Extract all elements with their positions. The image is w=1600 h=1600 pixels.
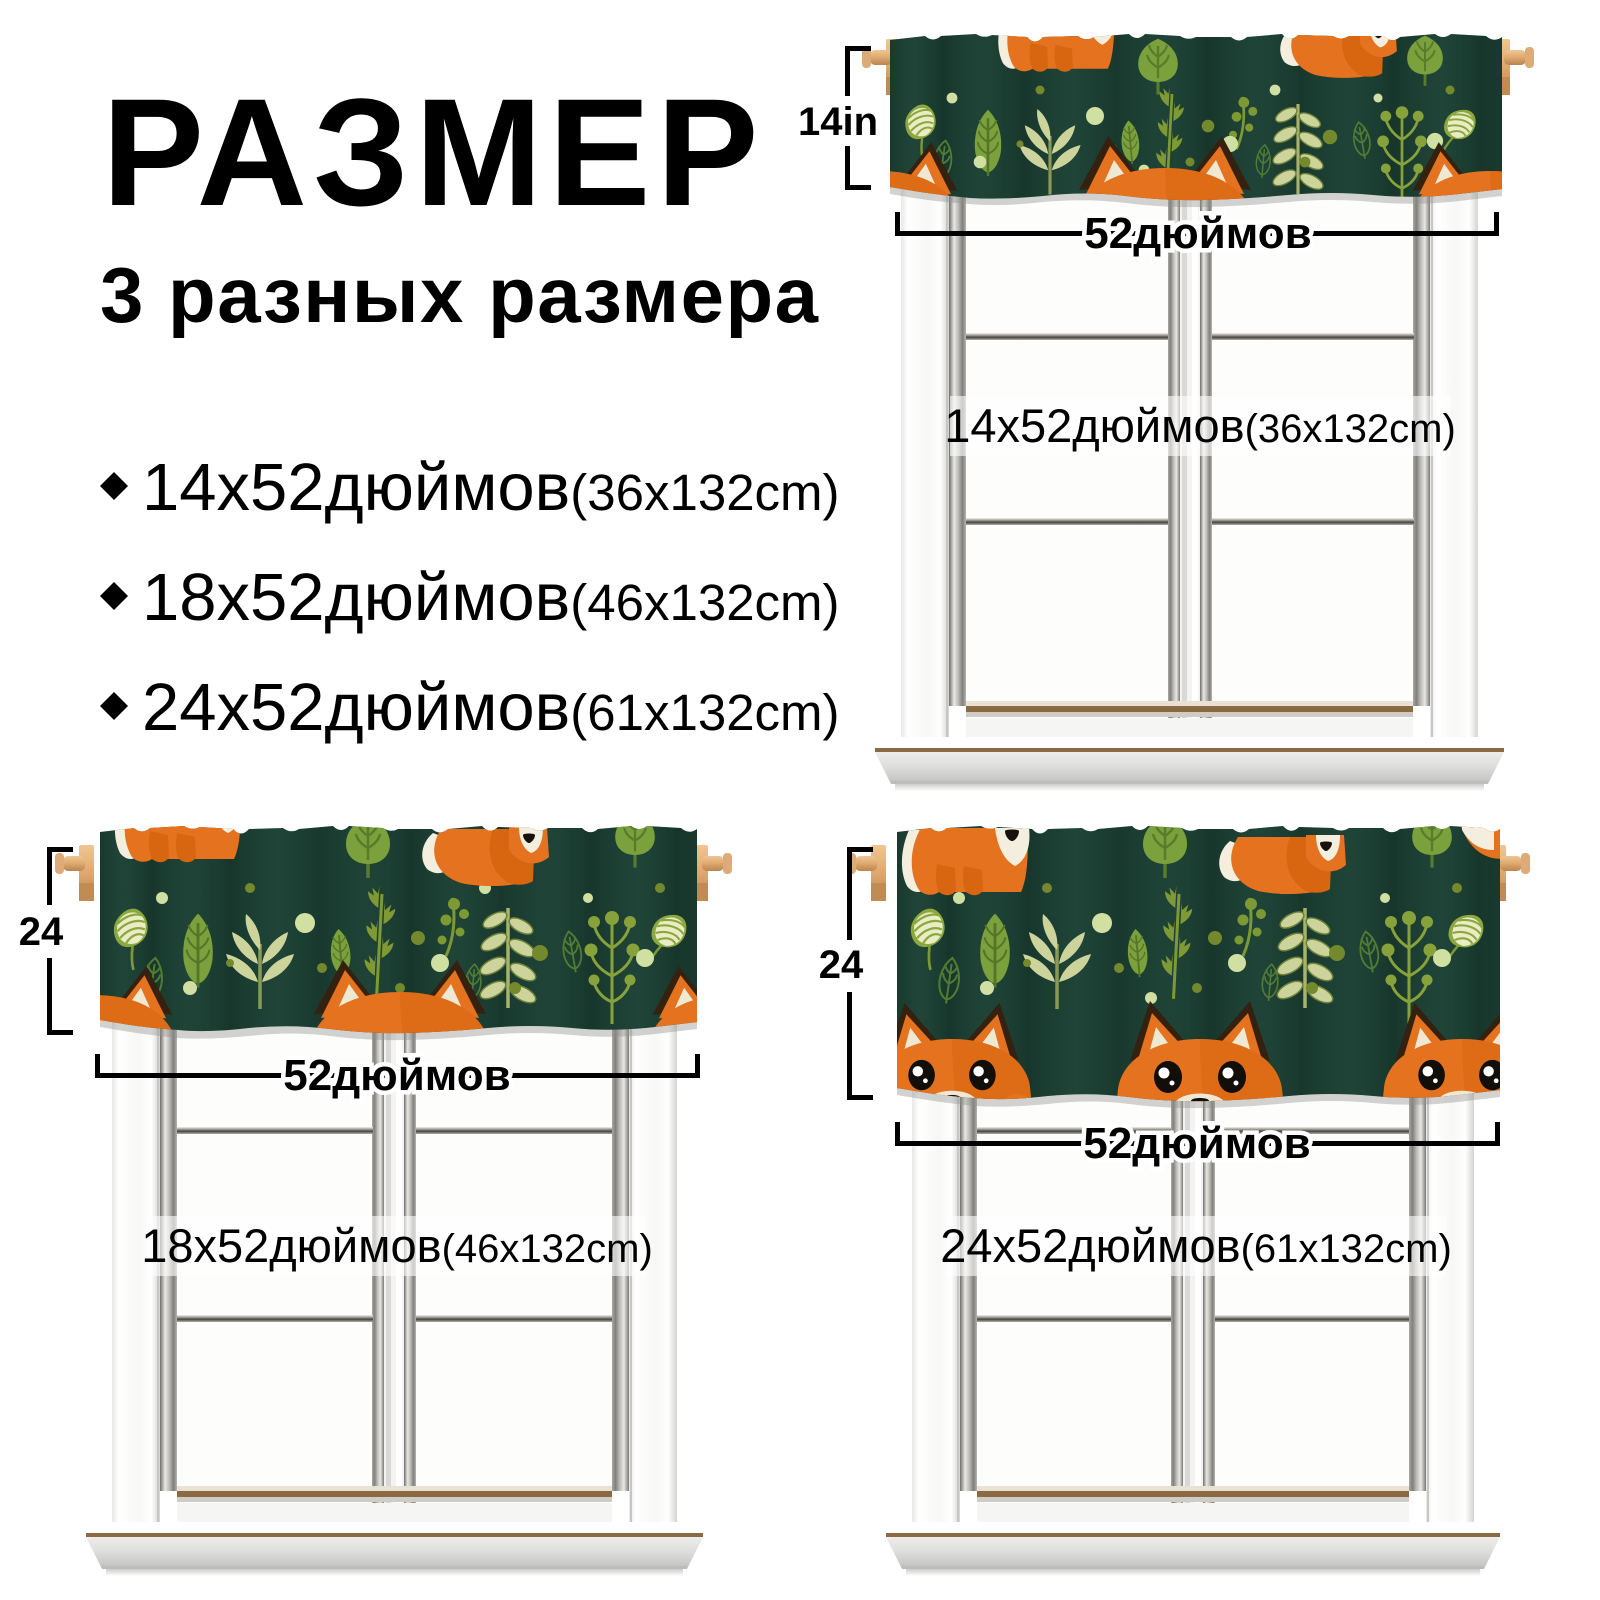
svg-text:14in: 14in — [798, 100, 878, 144]
svg-text:18x52дюймов(46x132cm): 18x52дюймов(46x132cm) — [141, 1219, 653, 1272]
svg-text:24x52дюймов(61x132cm): 24x52дюймов(61x132cm) — [142, 670, 840, 745]
svg-text:14x52дюймов(36x132cm): 14x52дюймов(36x132cm) — [142, 450, 840, 525]
svg-text:52дюймов: 52дюймов — [1084, 209, 1311, 258]
svg-text:24x52дюймов(61x132cm): 24x52дюймов(61x132cm) — [940, 1219, 1452, 1272]
svg-text:18x52дюймов(46x132cm): 18x52дюймов(46x132cm) — [142, 560, 840, 635]
svg-text:3 разных размера: 3 разных размера — [100, 251, 820, 339]
svg-text:52дюймов: 52дюймов — [1083, 1119, 1310, 1168]
svg-text:52дюймов: 52дюймов — [283, 1051, 510, 1100]
svg-text:24: 24 — [19, 910, 64, 954]
svg-text:14x52дюймов(36x132cm): 14x52дюймов(36x132cm) — [944, 399, 1456, 452]
svg-text:24: 24 — [819, 943, 864, 987]
svg-text:РАЗМЕР: РАЗМЕР — [102, 67, 765, 238]
